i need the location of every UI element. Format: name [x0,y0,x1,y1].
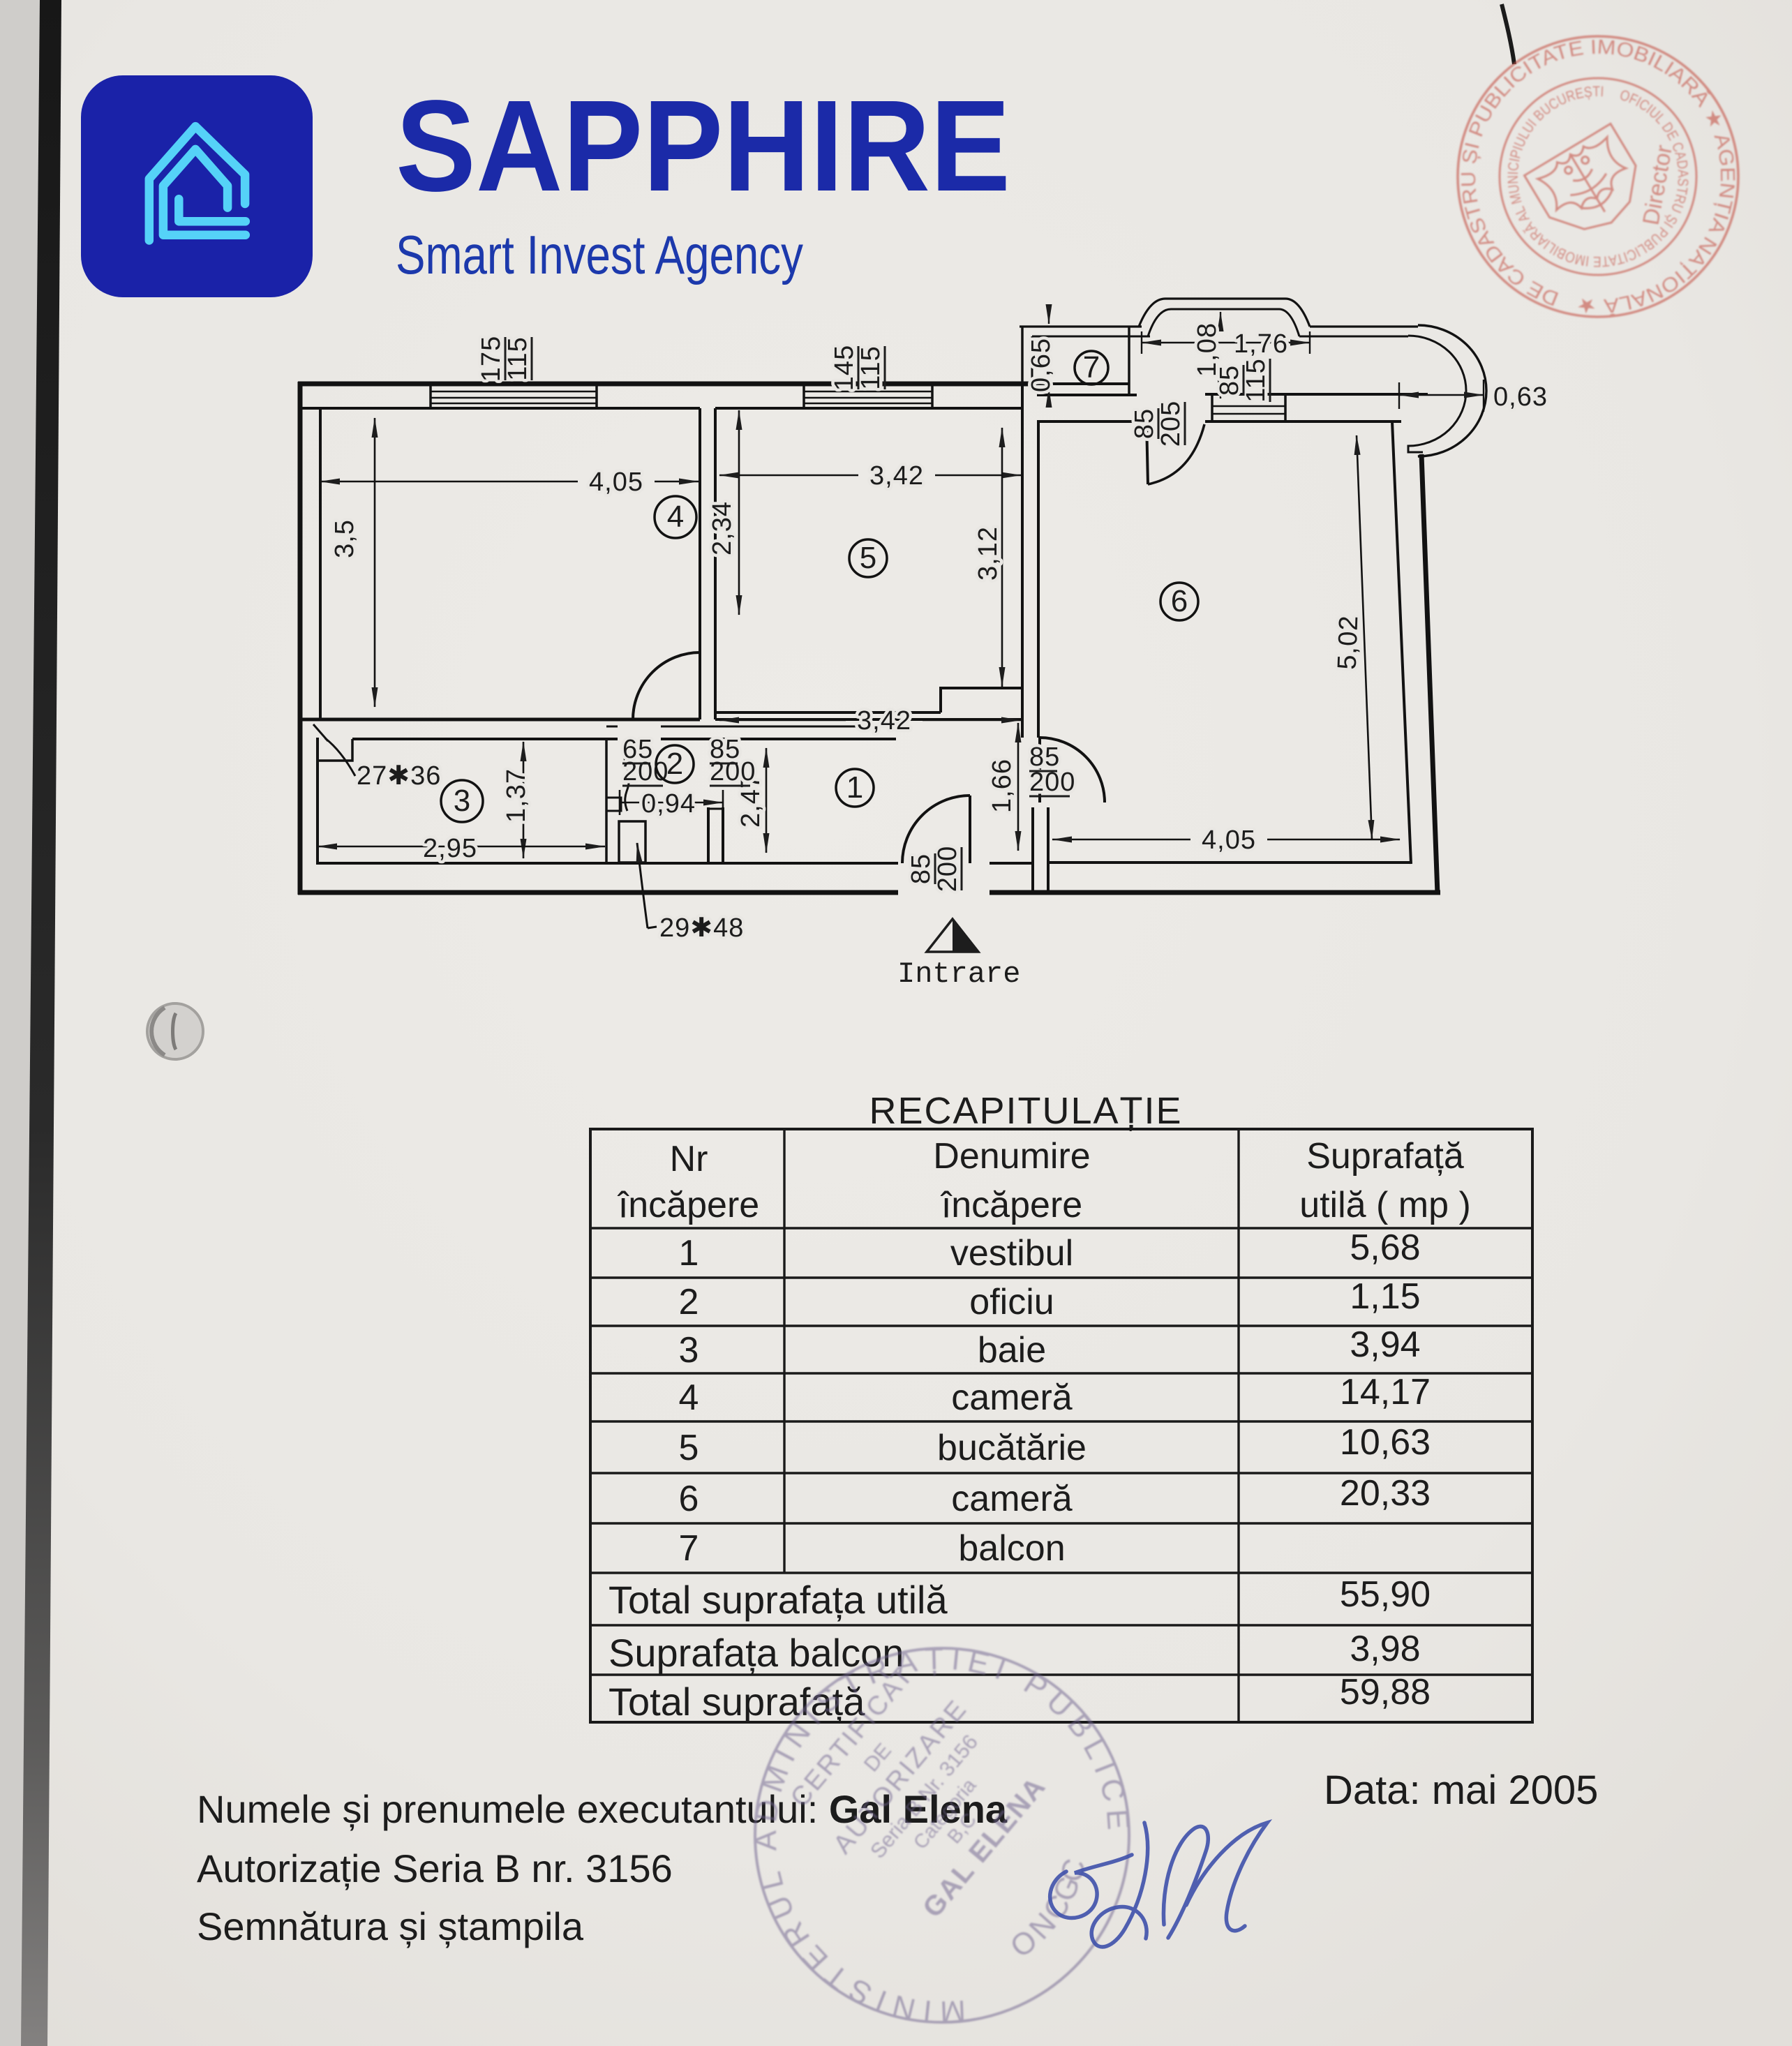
svg-text:115: 115 [1241,358,1271,403]
svg-text:3,98: 3,98 [1350,1629,1420,1669]
svg-text:vestibul: vestibul [950,1233,1073,1274]
svg-text:29✱48: 29✱48 [659,913,744,943]
svg-text:cameră: cameră [951,1377,1072,1418]
svg-text:balcon: balcon [958,1528,1065,1569]
svg-text:1,37: 1,37 [502,768,531,823]
svg-text:3,42: 3,42 [857,706,911,735]
svg-text:Semnătura și ștampila: Semnătura și ștampila [197,1904,584,1948]
svg-text:oficiu: oficiu [969,1282,1054,1322]
svg-text:Denumire: Denumire [933,1136,1090,1177]
svg-text:5,02: 5,02 [1333,615,1364,670]
svg-text:Suprafață: Suprafață [1306,1136,1464,1177]
svg-text:55,90: 55,90 [1340,1574,1431,1615]
svg-text:1: 1 [846,770,863,805]
svg-text:4,05: 4,05 [589,468,643,497]
svg-text:2: 2 [679,1282,699,1322]
svg-text:85: 85 [906,853,936,884]
svg-text:4: 4 [679,1377,699,1418]
svg-text:Autorizație Seria B nr. 3156: Autorizație Seria B nr. 3156 [197,1846,673,1890]
svg-text:2,95: 2,95 [423,834,477,863]
svg-text:7: 7 [1083,350,1100,384]
svg-text:0,94: 0,94 [641,789,696,819]
svg-text:1,15: 1,15 [1350,1276,1420,1317]
svg-text:1,76: 1,76 [1234,329,1288,359]
svg-text:Data: mai 2005: Data: mai 2005 [1324,1768,1598,1813]
svg-text:Total suprafața utilă: Total suprafața utilă [608,1578,948,1622]
svg-text:3: 3 [679,1330,699,1371]
svg-text:115: 115 [856,345,886,390]
svg-text:1,66: 1,66 [987,759,1017,813]
svg-text:205: 205 [1156,401,1186,447]
svg-text:Nr: Nr [670,1139,708,1179]
svg-text:10,63: 10,63 [1340,1422,1431,1463]
svg-text:85: 85 [1130,408,1159,439]
svg-text:SAPPHIRE: SAPPHIRE [396,74,1010,218]
svg-text:Smart Invest Agency: Smart Invest Agency [396,224,803,285]
svg-text:3,42: 3,42 [869,461,924,491]
svg-text:3,5: 3,5 [330,519,359,558]
svg-text:14,17: 14,17 [1340,1372,1431,1412]
svg-text:20,33: 20,33 [1340,1473,1431,1514]
svg-text:Intrare: Intrare [897,957,1020,991]
svg-text:4: 4 [667,500,684,534]
svg-text:4,05: 4,05 [1202,826,1256,855]
svg-text:RECAPITULAȚIE: RECAPITULAȚIE [869,1090,1182,1132]
svg-text:175: 175 [477,336,506,382]
svg-text:5,68: 5,68 [1350,1227,1420,1268]
svg-text:0,63: 0,63 [1493,382,1548,412]
svg-text:200: 200 [933,846,962,892]
svg-text:200: 200 [622,757,669,786]
svg-text:baie: baie [978,1330,1046,1371]
svg-text:145: 145 [830,345,859,391]
svg-text:cameră: cameră [951,1479,1072,1519]
svg-text:115: 115 [503,336,532,381]
svg-text:2,34: 2,34 [708,501,737,555]
svg-text:bucătărie: bucătărie [937,1428,1087,1468]
svg-text:utilă ( mp ): utilă ( mp ) [1299,1185,1471,1225]
svg-text:7: 7 [679,1528,699,1569]
svg-text:5: 5 [679,1428,699,1468]
svg-text:85: 85 [1215,365,1244,396]
svg-text:0,65: 0,65 [1026,338,1056,392]
svg-text:59,88: 59,88 [1340,1672,1431,1712]
svg-text:3: 3 [454,784,470,818]
svg-text:încăpere: încăpere [617,1185,759,1225]
svg-text:6: 6 [679,1479,699,1519]
svg-text:5: 5 [860,541,876,575]
svg-text:încăpere: încăpere [940,1185,1082,1225]
svg-text:3,12: 3,12 [973,526,1003,581]
svg-text:6: 6 [1171,584,1188,618]
svg-text:27✱36: 27✱36 [357,761,441,791]
svg-text:3,94: 3,94 [1350,1324,1420,1365]
svg-text:2: 2 [666,747,683,781]
svg-text:1: 1 [679,1233,699,1274]
svg-text:200: 200 [710,757,756,786]
